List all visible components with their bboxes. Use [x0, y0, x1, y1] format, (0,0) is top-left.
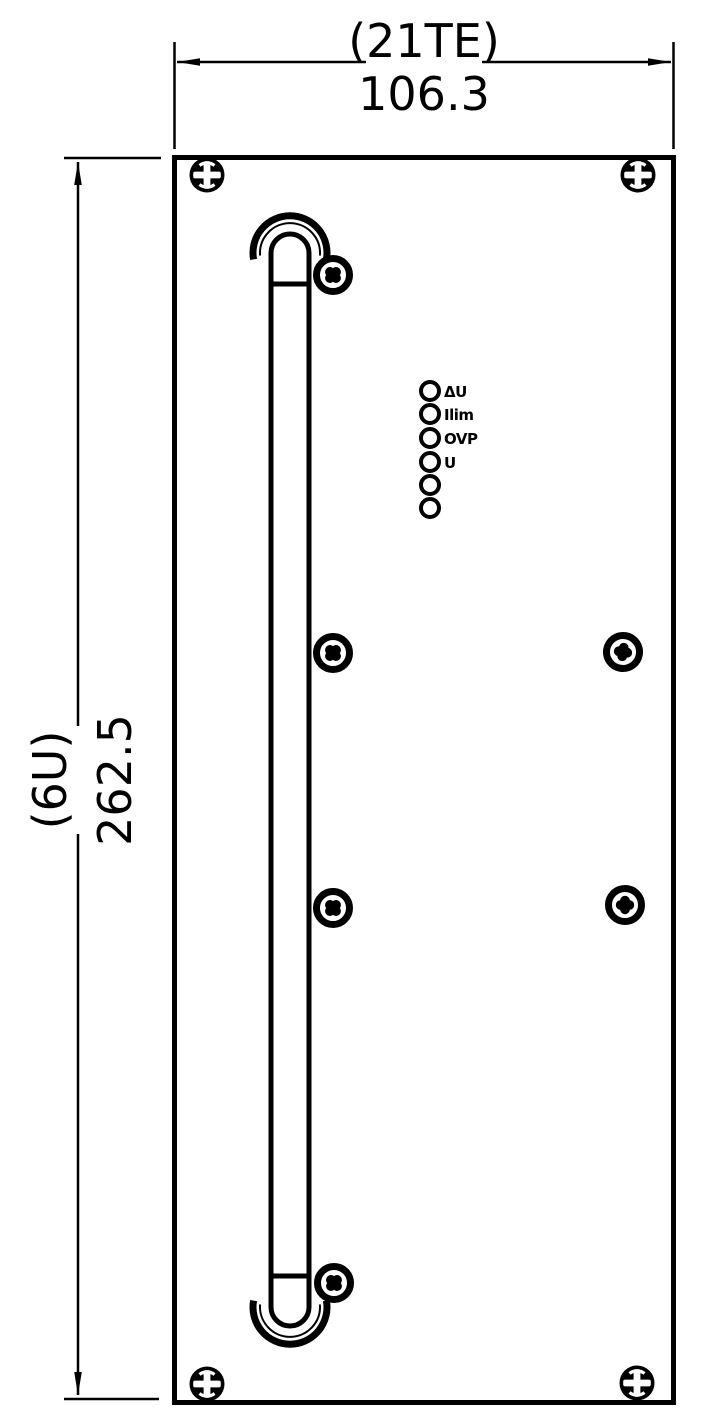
- led-indicator-1: [421, 382, 439, 400]
- arrowhead-right: [648, 58, 671, 66]
- led-indicator-2: [421, 405, 439, 423]
- arrowhead-left: [177, 58, 200, 66]
- drawing-canvas: (21TE) 106.3 (6U) 262.5: [0, 0, 724, 1428]
- arrowhead-top: [74, 162, 82, 185]
- corner-screw-bottom-left: [190, 1367, 225, 1402]
- panel-screw-right-mid-lower: [609, 889, 642, 922]
- handle-grip-bar[interactable]: [271, 234, 309, 1326]
- dimension-width-designation: (21TE): [348, 14, 500, 68]
- arrowhead-bottom: [74, 1372, 82, 1395]
- dimension-height-designation: (6U): [23, 731, 77, 830]
- led-indicator-4: [421, 453, 439, 471]
- led-indicator-6: [421, 499, 439, 517]
- dimension-width-value: 106.3: [358, 67, 490, 121]
- led-indicator-3: [421, 429, 439, 447]
- led-label-3: OVP: [444, 430, 478, 448]
- led-label-2: Ilim: [444, 406, 474, 424]
- led-label-1: ΔU: [444, 383, 467, 401]
- led-indicator-5: [421, 476, 439, 494]
- corner-screw-bottom-right: [620, 1366, 655, 1401]
- dimension-height-value: 262.5: [88, 714, 142, 846]
- panel-drawing: (21TE) 106.3 (6U) 262.5: [0, 0, 724, 1428]
- corner-screw-top-right: [621, 158, 656, 193]
- corner-screw-top-left: [190, 158, 225, 193]
- led-label-4: U: [444, 454, 456, 472]
- dimension-width: (21TE) 106.3: [175, 14, 674, 149]
- panel-outline: [175, 158, 674, 1403]
- dimension-height: (6U) 262.5: [23, 158, 161, 1399]
- panel-screw-right-mid-upper: [604, 633, 642, 671]
